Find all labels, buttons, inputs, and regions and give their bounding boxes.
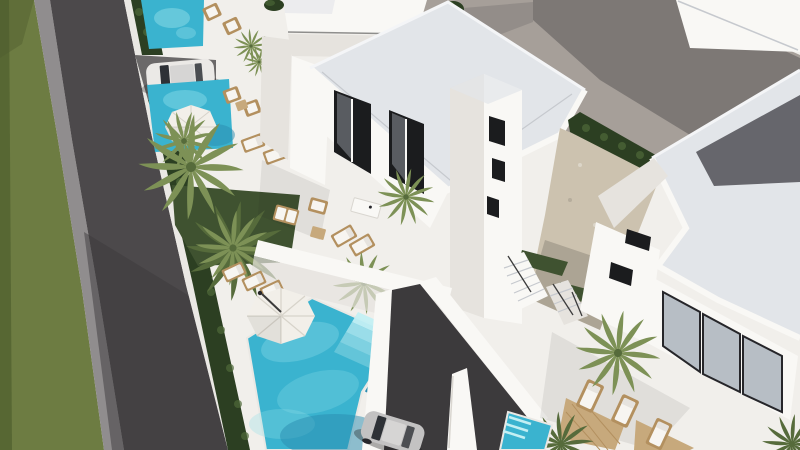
aerial-villa-render: Aerial view of a modern white villa comp… bbox=[0, 0, 800, 450]
foliage-blob bbox=[582, 124, 590, 132]
foliage-blob bbox=[241, 432, 249, 440]
tower-window bbox=[492, 158, 505, 182]
speckle bbox=[578, 163, 582, 167]
foliage-blob bbox=[234, 400, 242, 408]
foliage-blob bbox=[600, 133, 608, 141]
bush-highlight bbox=[265, 0, 275, 6]
foliage-blob bbox=[135, 8, 143, 16]
foliage-blob bbox=[207, 288, 215, 296]
speckle bbox=[568, 198, 572, 202]
side-wall bbox=[260, 36, 292, 160]
parasol-pole-base bbox=[258, 291, 262, 295]
cantilever-parasol bbox=[247, 288, 315, 344]
far-building-roof bbox=[676, 0, 800, 52]
pool-caustic bbox=[176, 27, 196, 39]
pool-caustic bbox=[154, 8, 190, 28]
foliage-blob bbox=[636, 151, 644, 159]
tower-window bbox=[489, 116, 505, 146]
tower-left-face bbox=[450, 74, 484, 318]
foliage-blob bbox=[217, 326, 225, 334]
roof-upper-box bbox=[283, 0, 335, 14]
foliage-blob bbox=[618, 142, 626, 150]
foliage-blob bbox=[226, 364, 234, 372]
pool-caustic bbox=[163, 90, 207, 110]
screenshot-canvas: Aerial view of a modern white villa comp… bbox=[0, 0, 800, 450]
tower bbox=[450, 74, 522, 324]
